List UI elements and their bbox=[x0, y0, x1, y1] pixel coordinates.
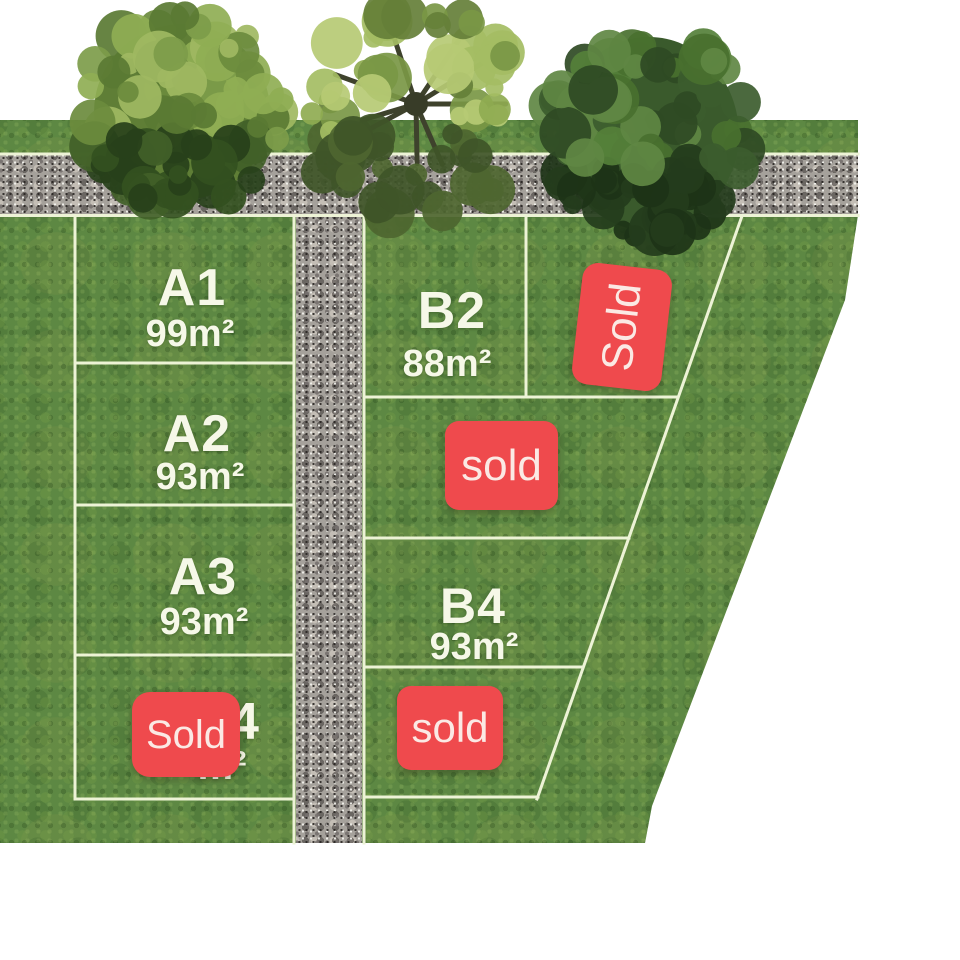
plot-b2[interactable]: B2 88m² bbox=[364, 217, 526, 397]
plot-b4[interactable]: B4 93m² bbox=[364, 538, 614, 667]
plot-a1-area: 99m² bbox=[146, 315, 235, 353]
plot-b2-area: 88m² bbox=[403, 345, 492, 383]
plot-b-bottom[interactable]: sold bbox=[364, 667, 564, 797]
sold-badge-a4: Sold bbox=[132, 692, 240, 777]
grass-verge-strip bbox=[0, 120, 858, 155]
plot-b-right[interactable]: Sold bbox=[526, 217, 742, 397]
plot-b2-code: B2 bbox=[418, 285, 486, 337]
sold-badge-b-bottom-text: sold bbox=[411, 707, 488, 749]
sold-badge-a4-text: Sold bbox=[146, 715, 226, 755]
site-plan: A1 99m² A2 93m² A3 93m² 4 m² Sold B2 88m… bbox=[0, 0, 960, 960]
sold-badge-b-bottom: sold bbox=[397, 686, 503, 770]
plot-a3[interactable]: A3 93m² bbox=[75, 505, 294, 655]
plot-b4-code: B4 bbox=[440, 581, 506, 631]
plot-a2-code: A2 bbox=[163, 408, 231, 460]
sold-badge-b-mid: sold bbox=[445, 421, 558, 510]
plot-a4[interactable]: 4 m² Sold bbox=[75, 655, 294, 799]
sold-badge-b-mid-text: sold bbox=[461, 444, 542, 488]
sold-badge-b-right: Sold bbox=[570, 261, 673, 392]
plot-b4-area: 93m² bbox=[430, 628, 519, 666]
plot-a1[interactable]: A1 99m² bbox=[75, 217, 294, 363]
sold-badge-b-right-text: Sold bbox=[595, 281, 649, 373]
plot-a2[interactable]: A2 93m² bbox=[75, 363, 294, 505]
plot-a3-code: A3 bbox=[169, 551, 237, 603]
plot-b-mid[interactable]: sold bbox=[364, 397, 664, 538]
plot-a3-area: 93m² bbox=[160, 603, 249, 641]
vertical-road bbox=[296, 215, 362, 843]
horizontal-road bbox=[0, 155, 858, 216]
plot-a2-area: 93m² bbox=[156, 458, 245, 496]
plot-a1-code: A1 bbox=[158, 262, 226, 314]
